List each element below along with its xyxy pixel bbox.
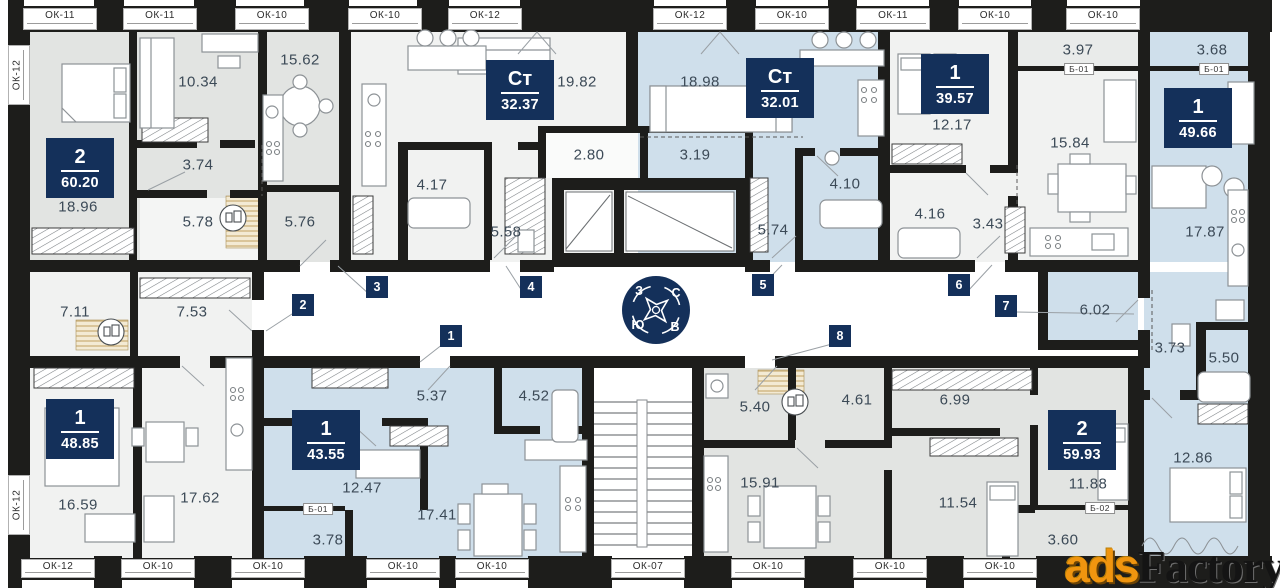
entrance-marker: 3 (366, 276, 388, 298)
window-marker: ОК-10 (731, 559, 805, 578)
window-marker-label: ОК-11 (878, 11, 908, 21)
window-marker: ОК-10 (455, 559, 529, 578)
watermark-rest: Factory (1138, 541, 1280, 588)
window-marker-label: ОК-12 (43, 562, 74, 572)
apartment-area: 32.37 (501, 97, 539, 113)
room-area-label: 12.86 (1173, 450, 1213, 467)
room-area-label: 17.87 (1185, 224, 1225, 241)
room-area-label: 11.54 (939, 495, 977, 512)
window-marker: ОК-10 (348, 8, 422, 30)
entrance-marker: 7 (995, 295, 1017, 317)
window-marker: ОК-10 (853, 559, 927, 578)
badge-divider (61, 431, 99, 433)
window-marker-label: ОК-10 (257, 11, 288, 21)
badge-divider (61, 170, 99, 172)
window-marker-label: ОК-10 (370, 11, 401, 21)
apartment-badge[interactable]: Ст32.01 (747, 59, 813, 117)
window-marker-label: ОК-10 (253, 562, 284, 572)
room-area-label: 3.19 (680, 147, 711, 164)
room-area-label: 18.98 (680, 74, 720, 91)
apartment-number: 2 (74, 146, 85, 168)
room-area-label: 5.58 (491, 224, 522, 241)
room-area-label: 5.78 (183, 214, 214, 231)
window-marker-label: ОК-12 (470, 11, 501, 21)
apartment-badge[interactable]: 260.20 (47, 139, 113, 197)
room-area-label: 4.61 (842, 392, 873, 409)
badge-divider (1179, 120, 1217, 122)
room-area-label: 5.50 (1209, 350, 1240, 367)
window-marker: ОК-12 (8, 475, 30, 535)
window-marker-label: ОК-12 (675, 11, 706, 21)
entrance-marker: 6 (948, 274, 970, 296)
window-marker-label: ОК-10 (388, 562, 419, 572)
window-marker: ОК-10 (235, 8, 309, 30)
entrance-marker: 2 (292, 294, 314, 316)
room-area-label: 4.17 (417, 177, 448, 194)
room-area-label: 3.43 (973, 216, 1004, 233)
room-area-label: 5.40 (740, 399, 771, 416)
window-marker: ОК-10 (1066, 8, 1140, 30)
compass-letter-s: Ю (632, 318, 645, 332)
window-marker-label: ОК-11 (45, 11, 75, 21)
apartment-area: 60.20 (61, 175, 99, 191)
window-marker-label: ОК-12 (12, 490, 22, 521)
apartment-badge[interactable]: 149.66 (1165, 89, 1231, 147)
room-area-label: 4.10 (830, 176, 861, 193)
room-area-label: 6.99 (940, 392, 971, 409)
apartment-badge[interactable]: 259.93 (1049, 411, 1115, 469)
entrance-marker: 4 (520, 276, 542, 298)
window-marker-label: ОК-10 (980, 11, 1011, 21)
apartment-number: 1 (320, 418, 331, 440)
window-marker-label: ОК-11 (145, 11, 175, 21)
balcony-label: Б-01 (1199, 63, 1229, 75)
room-area-label: 3.78 (313, 532, 344, 549)
room-area-label: 6.02 (1080, 302, 1111, 319)
window-marker-label: ОК-10 (777, 11, 808, 21)
window-marker: ОК-11 (856, 8, 930, 30)
elevator-shafts (566, 192, 734, 251)
entrance-marker: 1 (440, 325, 462, 347)
room-area-label: 5.76 (285, 214, 316, 231)
room-area-label: 17.62 (180, 490, 220, 507)
watermark-accent: ads (1064, 540, 1137, 588)
room-area-label: 10.34 (178, 74, 218, 91)
window-marker: ОК-10 (958, 8, 1032, 30)
entrance-marker: 8 (829, 325, 851, 347)
apartment-area: 32.01 (761, 95, 799, 111)
balcony-label: Б-01 (303, 503, 333, 515)
window-marker-label: ОК-12 (12, 60, 22, 91)
room-area-label: 3.97 (1063, 42, 1094, 59)
window-marker-label: ОК-10 (143, 562, 174, 572)
room-area-label: 7.53 (177, 304, 208, 321)
badge-divider (307, 442, 345, 444)
room-area-label: 15.91 (740, 475, 780, 492)
room-area-label: 5.37 (417, 388, 448, 405)
window-marker-label: ОК-10 (985, 562, 1016, 572)
window-marker: ОК-12 (8, 45, 30, 105)
window-marker: ОК-07 (611, 559, 685, 578)
balcony-label: Б-01 (1064, 63, 1094, 75)
apartment-number: 1 (1192, 96, 1203, 118)
apartment-badge[interactable]: 143.55 (293, 411, 359, 469)
watermark: adsFactory (1064, 543, 1280, 588)
room-area-label: 3.73 (1155, 340, 1186, 357)
room-area-label: 18.96 (58, 199, 98, 216)
room-area-label: 4.52 (519, 388, 550, 405)
room-area-label: 15.62 (280, 52, 320, 69)
apartment-number: 1 (949, 62, 960, 84)
room-area-label: 11.88 (1069, 476, 1107, 493)
entrance-marker: 5 (752, 274, 774, 296)
balcony-label: Б-02 (1085, 502, 1115, 514)
window-marker: ОК-10 (963, 559, 1037, 578)
apartment-number: 2 (1076, 418, 1087, 440)
window-marker-label: ОК-10 (753, 562, 784, 572)
compass-letter-n: С (671, 286, 680, 300)
apartment-number: Ст (508, 68, 532, 90)
window-marker: ОК-10 (121, 559, 195, 578)
badge-divider (936, 86, 974, 88)
room-area-label: 12.47 (342, 480, 382, 497)
apartment-area: 48.85 (61, 436, 99, 452)
stairs (594, 400, 692, 547)
window-marker: ОК-12 (448, 8, 522, 30)
apartment-badge[interactable]: 148.85 (47, 400, 113, 458)
window-marker-label: ОК-10 (1088, 11, 1119, 21)
apartment-area: 43.55 (307, 447, 345, 463)
window-marker: ОК-10 (366, 559, 440, 578)
compass-letter-w: З (635, 284, 643, 298)
room-area-label: 3.68 (1197, 42, 1228, 59)
room-area-label: 4.16 (915, 206, 946, 223)
window-marker: ОК-10 (755, 8, 829, 30)
apartment-number: Ст (768, 66, 792, 88)
window-marker: ОК-12 (21, 559, 95, 578)
apartment-area: 49.66 (1179, 125, 1217, 141)
room-area-label: 19.82 (557, 74, 597, 91)
window-marker-label: ОК-07 (633, 562, 664, 572)
window-marker: ОК-10 (231, 559, 305, 578)
room-area-label: 15.84 (1050, 135, 1090, 152)
apartment-badge[interactable]: 139.57 (922, 55, 988, 113)
room-area-label: 12.17 (932, 117, 972, 134)
badge-divider (1063, 442, 1101, 444)
apartment-number: 1 (74, 407, 85, 429)
window-marker-label: ОК-10 (477, 562, 508, 572)
room-area-label: 3.74 (183, 157, 214, 174)
room-area-label: 17.41 (417, 507, 457, 524)
window-marker-label: ОК-10 (875, 562, 906, 572)
room-area-label: 16.59 (58, 497, 98, 514)
apartment-badge[interactable]: Ст32.37 (487, 61, 553, 119)
compass-letter-e: В (670, 320, 679, 334)
room-area-label: 2.80 (574, 147, 605, 164)
badge-divider (761, 90, 799, 92)
room-area-label: 5.74 (758, 222, 789, 239)
window-marker: ОК-12 (653, 8, 727, 30)
apartment-area: 59.93 (1063, 447, 1101, 463)
apartment-area: 39.57 (936, 91, 974, 107)
room-area-label: 7.11 (60, 304, 90, 321)
window-marker: ОК-11 (123, 8, 197, 30)
floor-plan: adsFactory ОК-11ОК-11ОК-10ОК-10ОК-12ОК-1… (0, 0, 1280, 588)
window-marker: ОК-11 (23, 8, 97, 30)
badge-divider (501, 92, 539, 94)
